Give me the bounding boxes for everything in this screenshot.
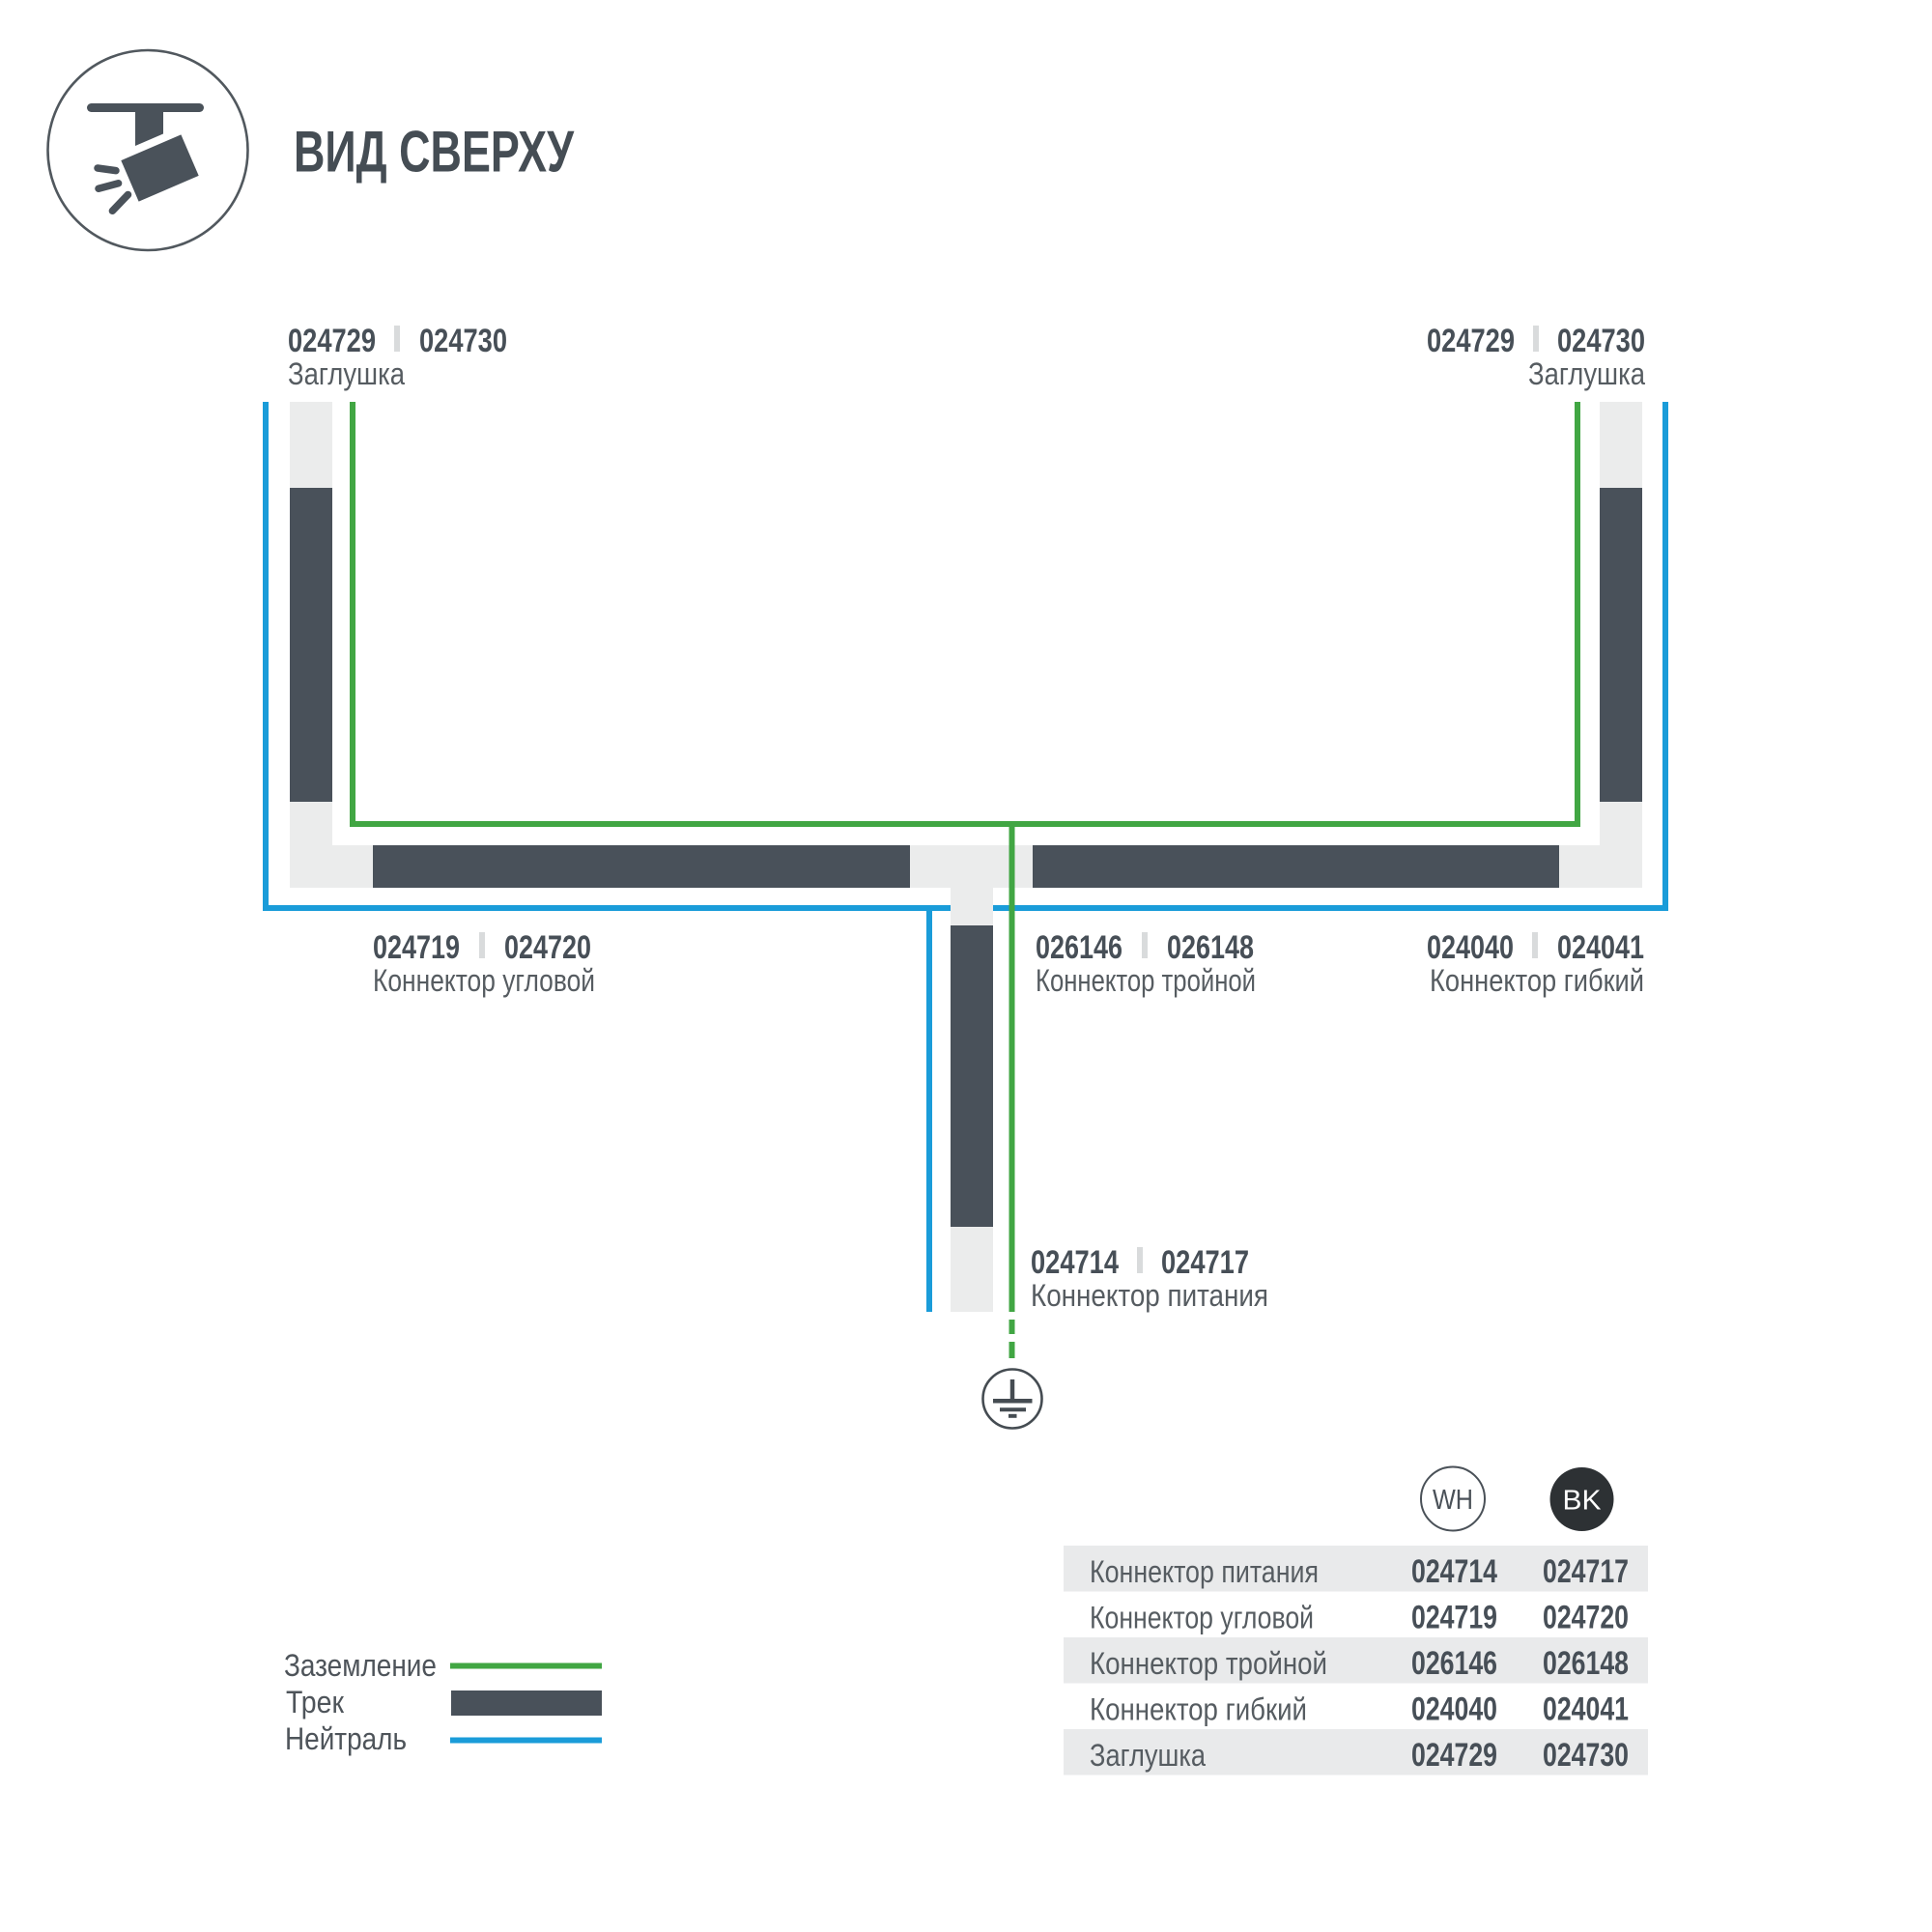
svg-text:024714: 024714 [1031, 1244, 1119, 1281]
svg-text:024041: 024041 [1557, 929, 1644, 966]
svg-text:Заземление: Заземление [284, 1648, 437, 1683]
svg-text:Заглушка: Заглушка [1528, 356, 1646, 391]
svg-text:Заглушка: Заглушка [1090, 1738, 1207, 1773]
svg-text:024717: 024717 [1161, 1244, 1249, 1281]
svg-text:Коннектор питания: Коннектор питания [1031, 1278, 1268, 1313]
svg-text:WH: WH [1433, 1485, 1473, 1516]
svg-text:Трек: Трек [286, 1685, 345, 1719]
svg-text:024720: 024720 [504, 929, 591, 966]
svg-text:024729: 024729 [1411, 1737, 1497, 1774]
svg-text:024714: 024714 [1411, 1553, 1497, 1590]
svg-text:026146: 026146 [1036, 929, 1122, 966]
svg-text:026148: 026148 [1167, 929, 1254, 966]
svg-text:Коннектор гибкий: Коннектор гибкий [1430, 963, 1644, 998]
svg-text:Нейтраль: Нейтраль [285, 1721, 407, 1756]
svg-text:024719: 024719 [1411, 1600, 1497, 1636]
svg-text:024720: 024720 [1543, 1600, 1629, 1636]
svg-text:024719: 024719 [373, 929, 460, 966]
svg-text:024041: 024041 [1543, 1691, 1629, 1728]
svg-text:024730: 024730 [1543, 1737, 1629, 1774]
svg-text:Коннектор угловой: Коннектор угловой [1090, 1601, 1314, 1635]
svg-text:026148: 026148 [1543, 1645, 1629, 1682]
svg-text:Заглушка: Заглушка [288, 356, 406, 391]
svg-text:Коннектор гибкий: Коннектор гибкий [1090, 1692, 1307, 1727]
svg-text:026146: 026146 [1411, 1645, 1497, 1682]
svg-text:Коннектор угловой: Коннектор угловой [373, 963, 595, 998]
svg-text:Коннектор тройной: Коннектор тройной [1036, 963, 1256, 998]
svg-text:024729: 024729 [288, 323, 376, 359]
svg-text:ВИД СВЕРХУ: ВИД СВЕРХУ [294, 120, 574, 185]
svg-text:024040: 024040 [1411, 1691, 1497, 1728]
svg-text:BK: BK [1563, 1486, 1603, 1517]
svg-text:024717: 024717 [1543, 1553, 1629, 1590]
svg-text:Коннектор тройной: Коннектор тройной [1090, 1646, 1327, 1681]
svg-text:Коннектор питания: Коннектор питания [1090, 1554, 1319, 1589]
svg-text:024730: 024730 [419, 323, 507, 359]
svg-text:024729: 024729 [1427, 323, 1515, 359]
svg-text:024730: 024730 [1557, 323, 1645, 359]
svg-text:024040: 024040 [1427, 929, 1514, 966]
